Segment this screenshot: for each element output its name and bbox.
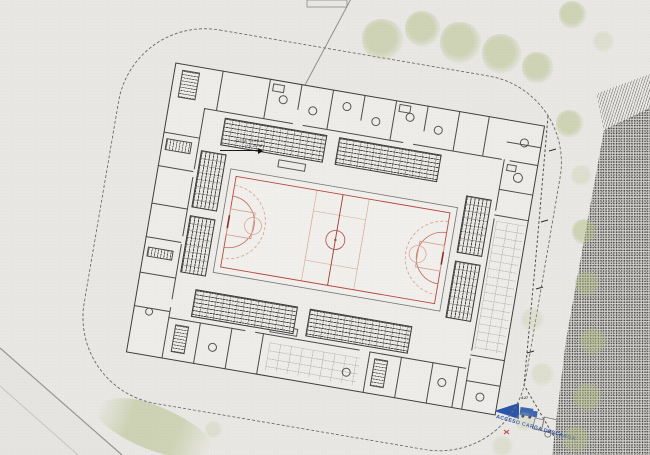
tree-canopy-icon — [492, 436, 514, 455]
fixture-circle — [278, 94, 288, 104]
level-arrow — [220, 150, 258, 151]
arrow-head-icon — [258, 148, 263, 154]
building-plan — [126, 63, 545, 416]
tree-canopy-icon — [593, 31, 615, 53]
fixture-circle — [433, 124, 443, 134]
site-plan-canvas: COTA +4.50 M (+1.20 M) 4.27 ACCESO CARGA… — [0, 0, 650, 455]
tree-canopy-icon — [580, 328, 608, 356]
tree-canopy-icon — [515, 412, 535, 432]
tree-canopy-icon — [571, 165, 593, 187]
fixture-circle — [519, 137, 529, 147]
dimension-label: 4.27 — [521, 396, 528, 400]
fitting-rect — [506, 164, 517, 173]
tree-canopy-icon — [482, 34, 522, 74]
utility-box — [307, 0, 347, 7]
tree-canopy-icon — [572, 219, 598, 245]
tree-canopy-icon — [559, 1, 587, 29]
tree-canopy-icon — [440, 22, 482, 64]
level-annotation-line2: (+1.20 M) — [206, 144, 264, 149]
tree-canopy-icon — [205, 421, 223, 439]
tree-canopy-icon — [362, 19, 404, 61]
tree-canopy-icon — [563, 426, 591, 454]
fixture-circle — [207, 342, 217, 352]
tree-canopy-icon — [531, 363, 555, 387]
fixture-circle — [370, 116, 380, 126]
fixture-circle — [436, 377, 446, 387]
tree-canopy-icon — [556, 110, 584, 138]
fixture-circle — [341, 101, 351, 111]
red-survey-mark — [504, 430, 509, 434]
tree-canopy-icon — [575, 271, 601, 297]
tree-canopy-icon — [521, 308, 545, 332]
tree-canopy-icon — [522, 52, 554, 84]
fixture-circle — [307, 105, 317, 115]
fixture-circle — [474, 391, 484, 401]
tree-canopy-icon — [405, 11, 441, 47]
tree-canopy-icon — [573, 383, 603, 413]
level-annotation: COTA +4.50 M (+1.20 M) — [206, 139, 264, 151]
